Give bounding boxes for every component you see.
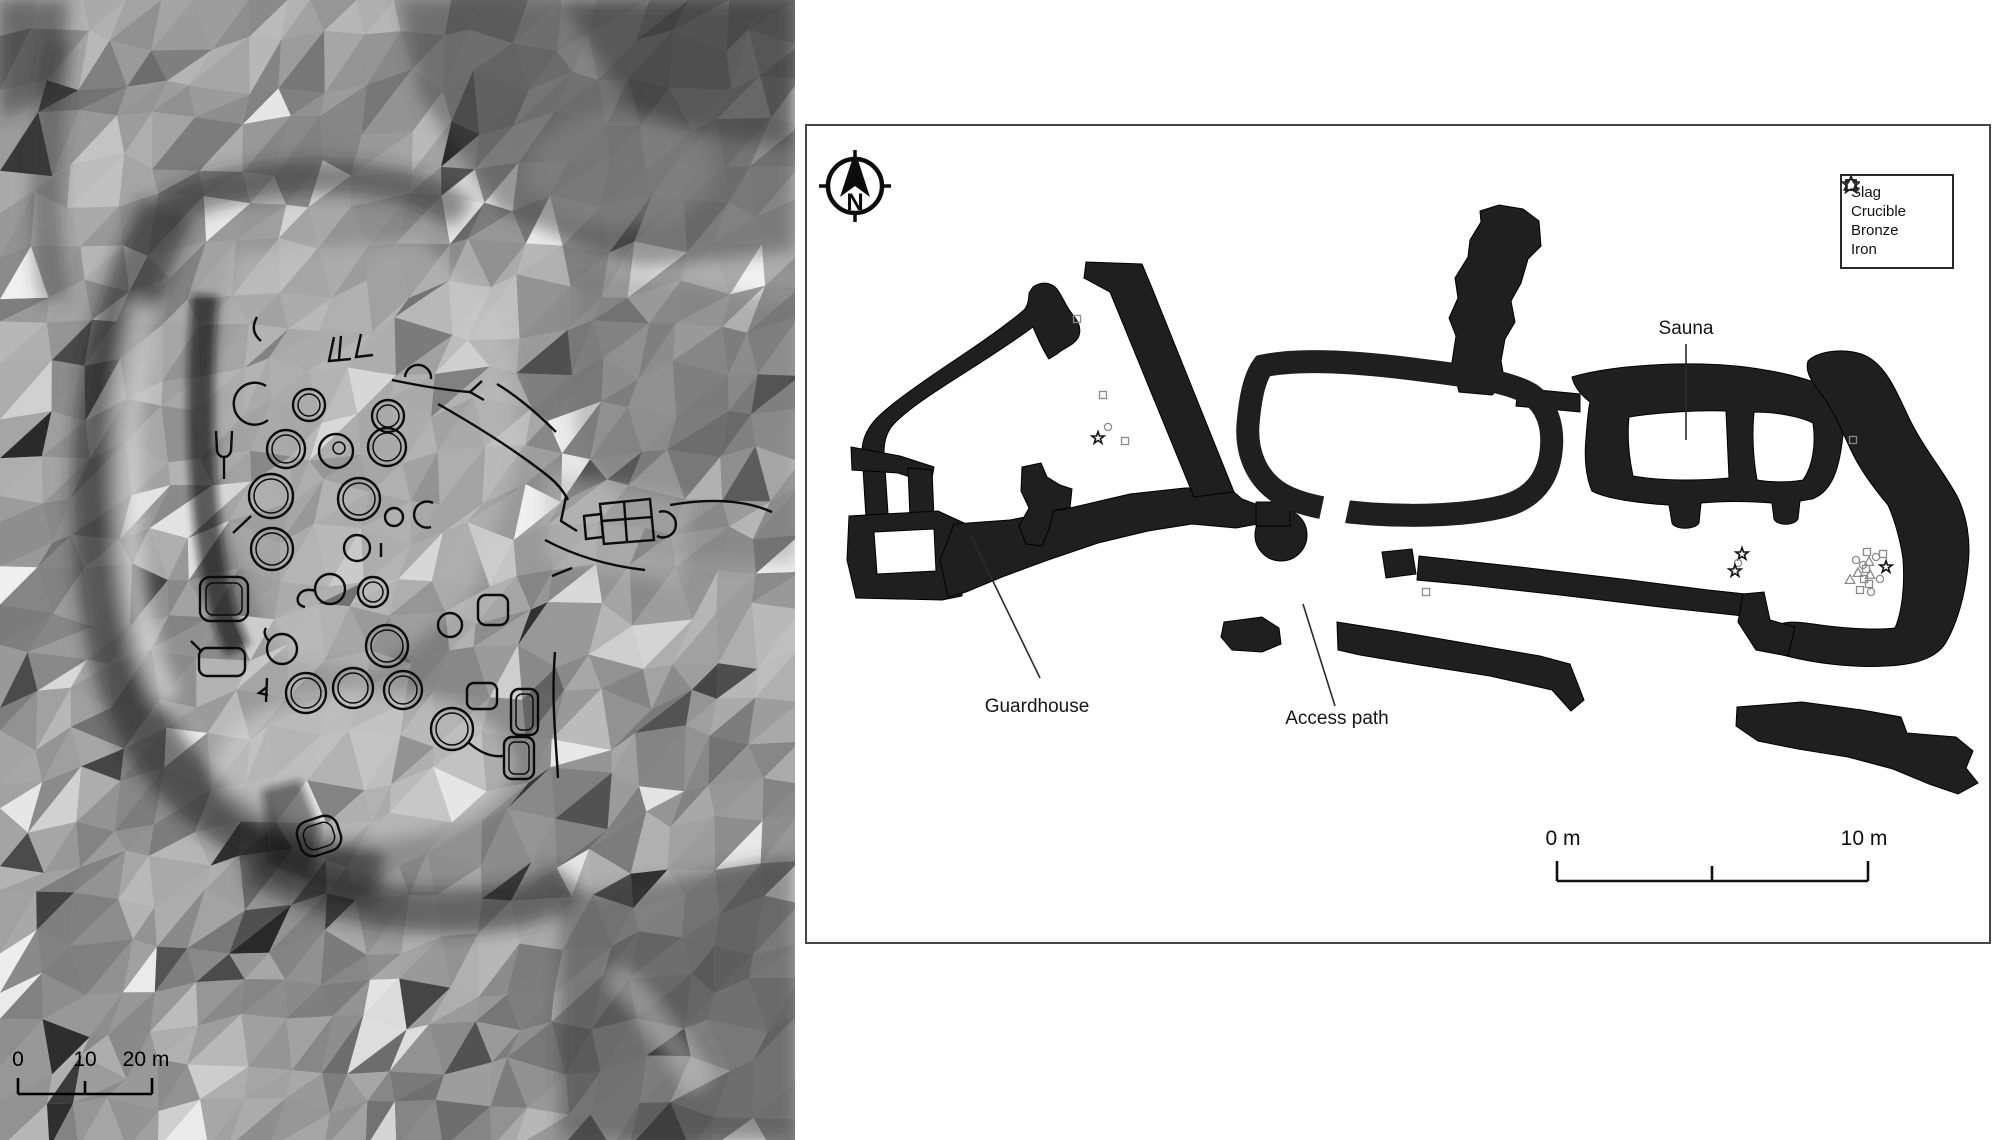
right-scale-start: 0 m (1545, 827, 1580, 850)
lidar-hillshade-panel: 0 10 20 m (0, 0, 800, 1140)
legend: SlagCrucibleBronzeIron (1840, 174, 1954, 269)
legend-item-label: Iron (1851, 242, 1877, 257)
guardhouse-label: Guardhouse (985, 696, 1090, 717)
legend-item-label: Crucible (1851, 204, 1906, 219)
legend-item-iron: Iron (1851, 240, 1944, 259)
left-scale-tick-10: 10 (73, 1048, 96, 1071)
legend-rows: SlagCrucibleBronzeIron (1851, 183, 1944, 259)
legend-item-label: Bronze (1851, 223, 1899, 238)
plan-panel: Sauna Guardhouse Access path N 0 m 10 m (806, 125, 1990, 943)
wall-small-piece (1382, 549, 1416, 578)
left-scale-tick-0: 0 (12, 1048, 24, 1071)
sauna-label: Sauna (1659, 318, 1714, 339)
access-path-label: Access path (1285, 708, 1389, 729)
star-icon (1842, 176, 1860, 194)
right-scale-end: 10 m (1841, 827, 1888, 850)
legend-item-slag: Slag (1851, 183, 1944, 202)
north-arrow-letter: N (846, 189, 863, 216)
legend-item-bronze: Bronze (1851, 221, 1944, 240)
wall-stub (908, 468, 934, 518)
figure: 0 10 20 m (0, 0, 2000, 1140)
figure-canvas: 0 10 20 m (0, 0, 2000, 1140)
left-scale-tick-20: 20 m (123, 1048, 170, 1071)
legend-item-crucible: Crucible (1851, 202, 1944, 221)
